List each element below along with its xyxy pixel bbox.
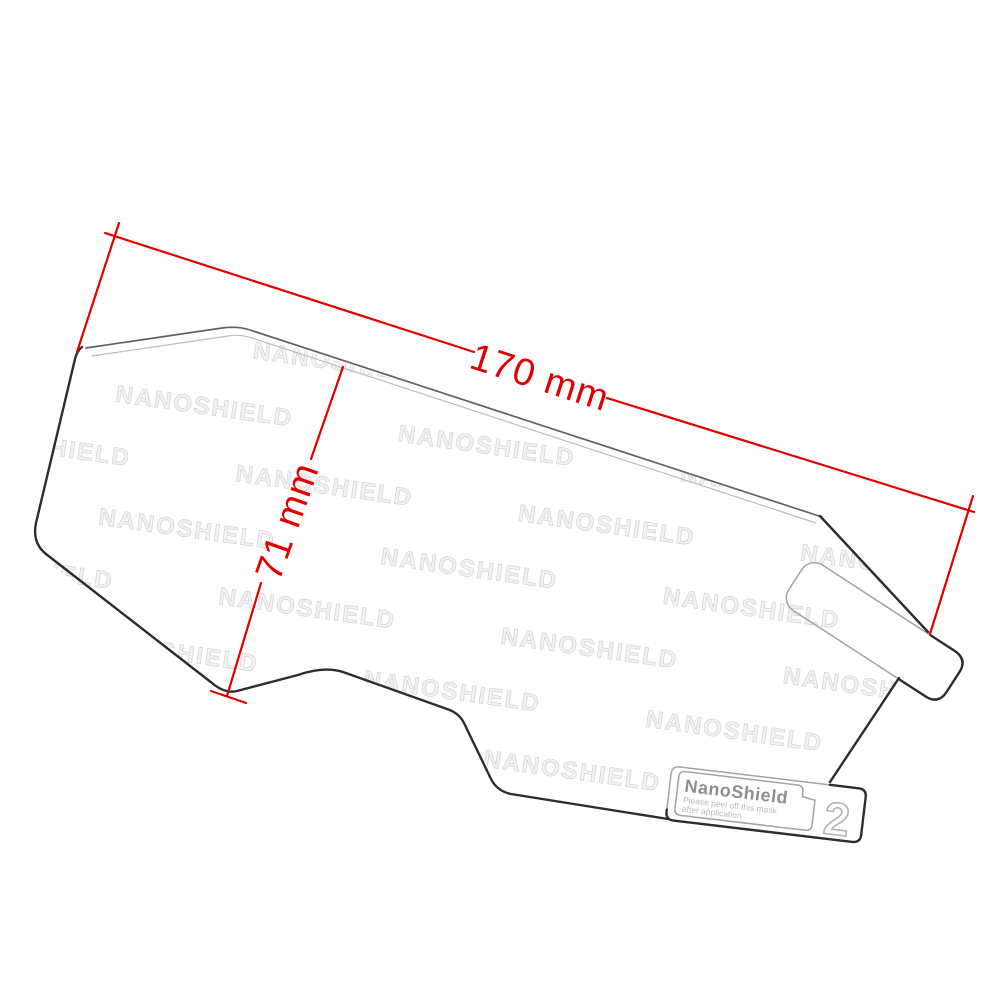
watermark-text: NANOSHIELD: [781, 662, 962, 714]
watermark-text: NANOSHIELD: [97, 504, 278, 556]
watermark-text: NANOSHIELD: [0, 341, 13, 393]
watermark-text: NANOSHIELD: [816, 417, 997, 469]
watermark-text: NANOSHIELD: [978, 377, 1000, 429]
watermark-text: NANOSHIELD: [696, 337, 877, 389]
watermark-text: NANOSHIELD: [661, 583, 842, 635]
watermark-text: NANOSHIELD: [644, 706, 825, 758]
peel-instruction-label: NanoShield Please peel off this mask aft…: [665, 766, 867, 848]
width-dimension-line-segment-2: [607, 398, 974, 512]
watermark-text: NANOSHIELD: [80, 626, 261, 678]
watermark-text: NANOSHIELD: [345, 789, 526, 841]
watermark-text: NANOSHIELD: [627, 828, 808, 880]
watermark-text: NANOSHIELD: [551, 254, 732, 306]
width-extension-line-right: [930, 496, 973, 634]
watermark-text: NANOSHIELD: [516, 500, 697, 552]
watermark-text: NANOSHIELD: [217, 583, 398, 635]
watermark-text: NANOSHIELD: [234, 460, 415, 512]
width-dimension-line-segment-1: [105, 233, 474, 352]
outline-left-bottom-edge: [35, 347, 668, 819]
watermark-text: NANOSHIELD: [499, 623, 680, 675]
watermark-text: NANOSHIELD: [0, 421, 133, 473]
watermark-text: NANOSHIELD: [379, 543, 560, 595]
pull-tab-outer-edge: [899, 634, 968, 705]
height-dimension-line-segment-1: [311, 367, 343, 459]
watermark-text: NANOSHIELD: [0, 218, 30, 270]
product-image: NANOSHIELDNANOSHIELDNANOSHIELDNANOSHIELD…: [0, 0, 1000, 1000]
watermark-text: NANOSHIELD: [131, 258, 312, 310]
watermark-text: NANOSHIELD: [961, 500, 1000, 552]
width-extension-line-left: [77, 223, 119, 352]
watermark-text: NANOSHIELD: [0, 175, 167, 227]
watermark-text: NANOSHIELD: [833, 294, 1000, 346]
watermark-text: NANOSHIELD: [269, 215, 450, 267]
watermark-text: NANOSHIELD: [0, 543, 115, 595]
watermark-text: NANOSHIELD: [926, 745, 1000, 797]
watermark-text: NANOSHIELD: [62, 749, 243, 801]
nanoshield-protector-diagram: NANOSHIELDNANOSHIELDNANOSHIELDNANOSHIELD…: [0, 0, 1000, 1000]
watermark-text: NANOSHIELD: [482, 745, 663, 797]
watermark-text: NANOSHIELD: [0, 666, 98, 718]
watermark-text: NANOSHIELD: [909, 868, 1000, 920]
watermark-text: NANOSHIELD: [114, 381, 295, 433]
watermark-text: NANOSHIELD: [200, 706, 381, 758]
